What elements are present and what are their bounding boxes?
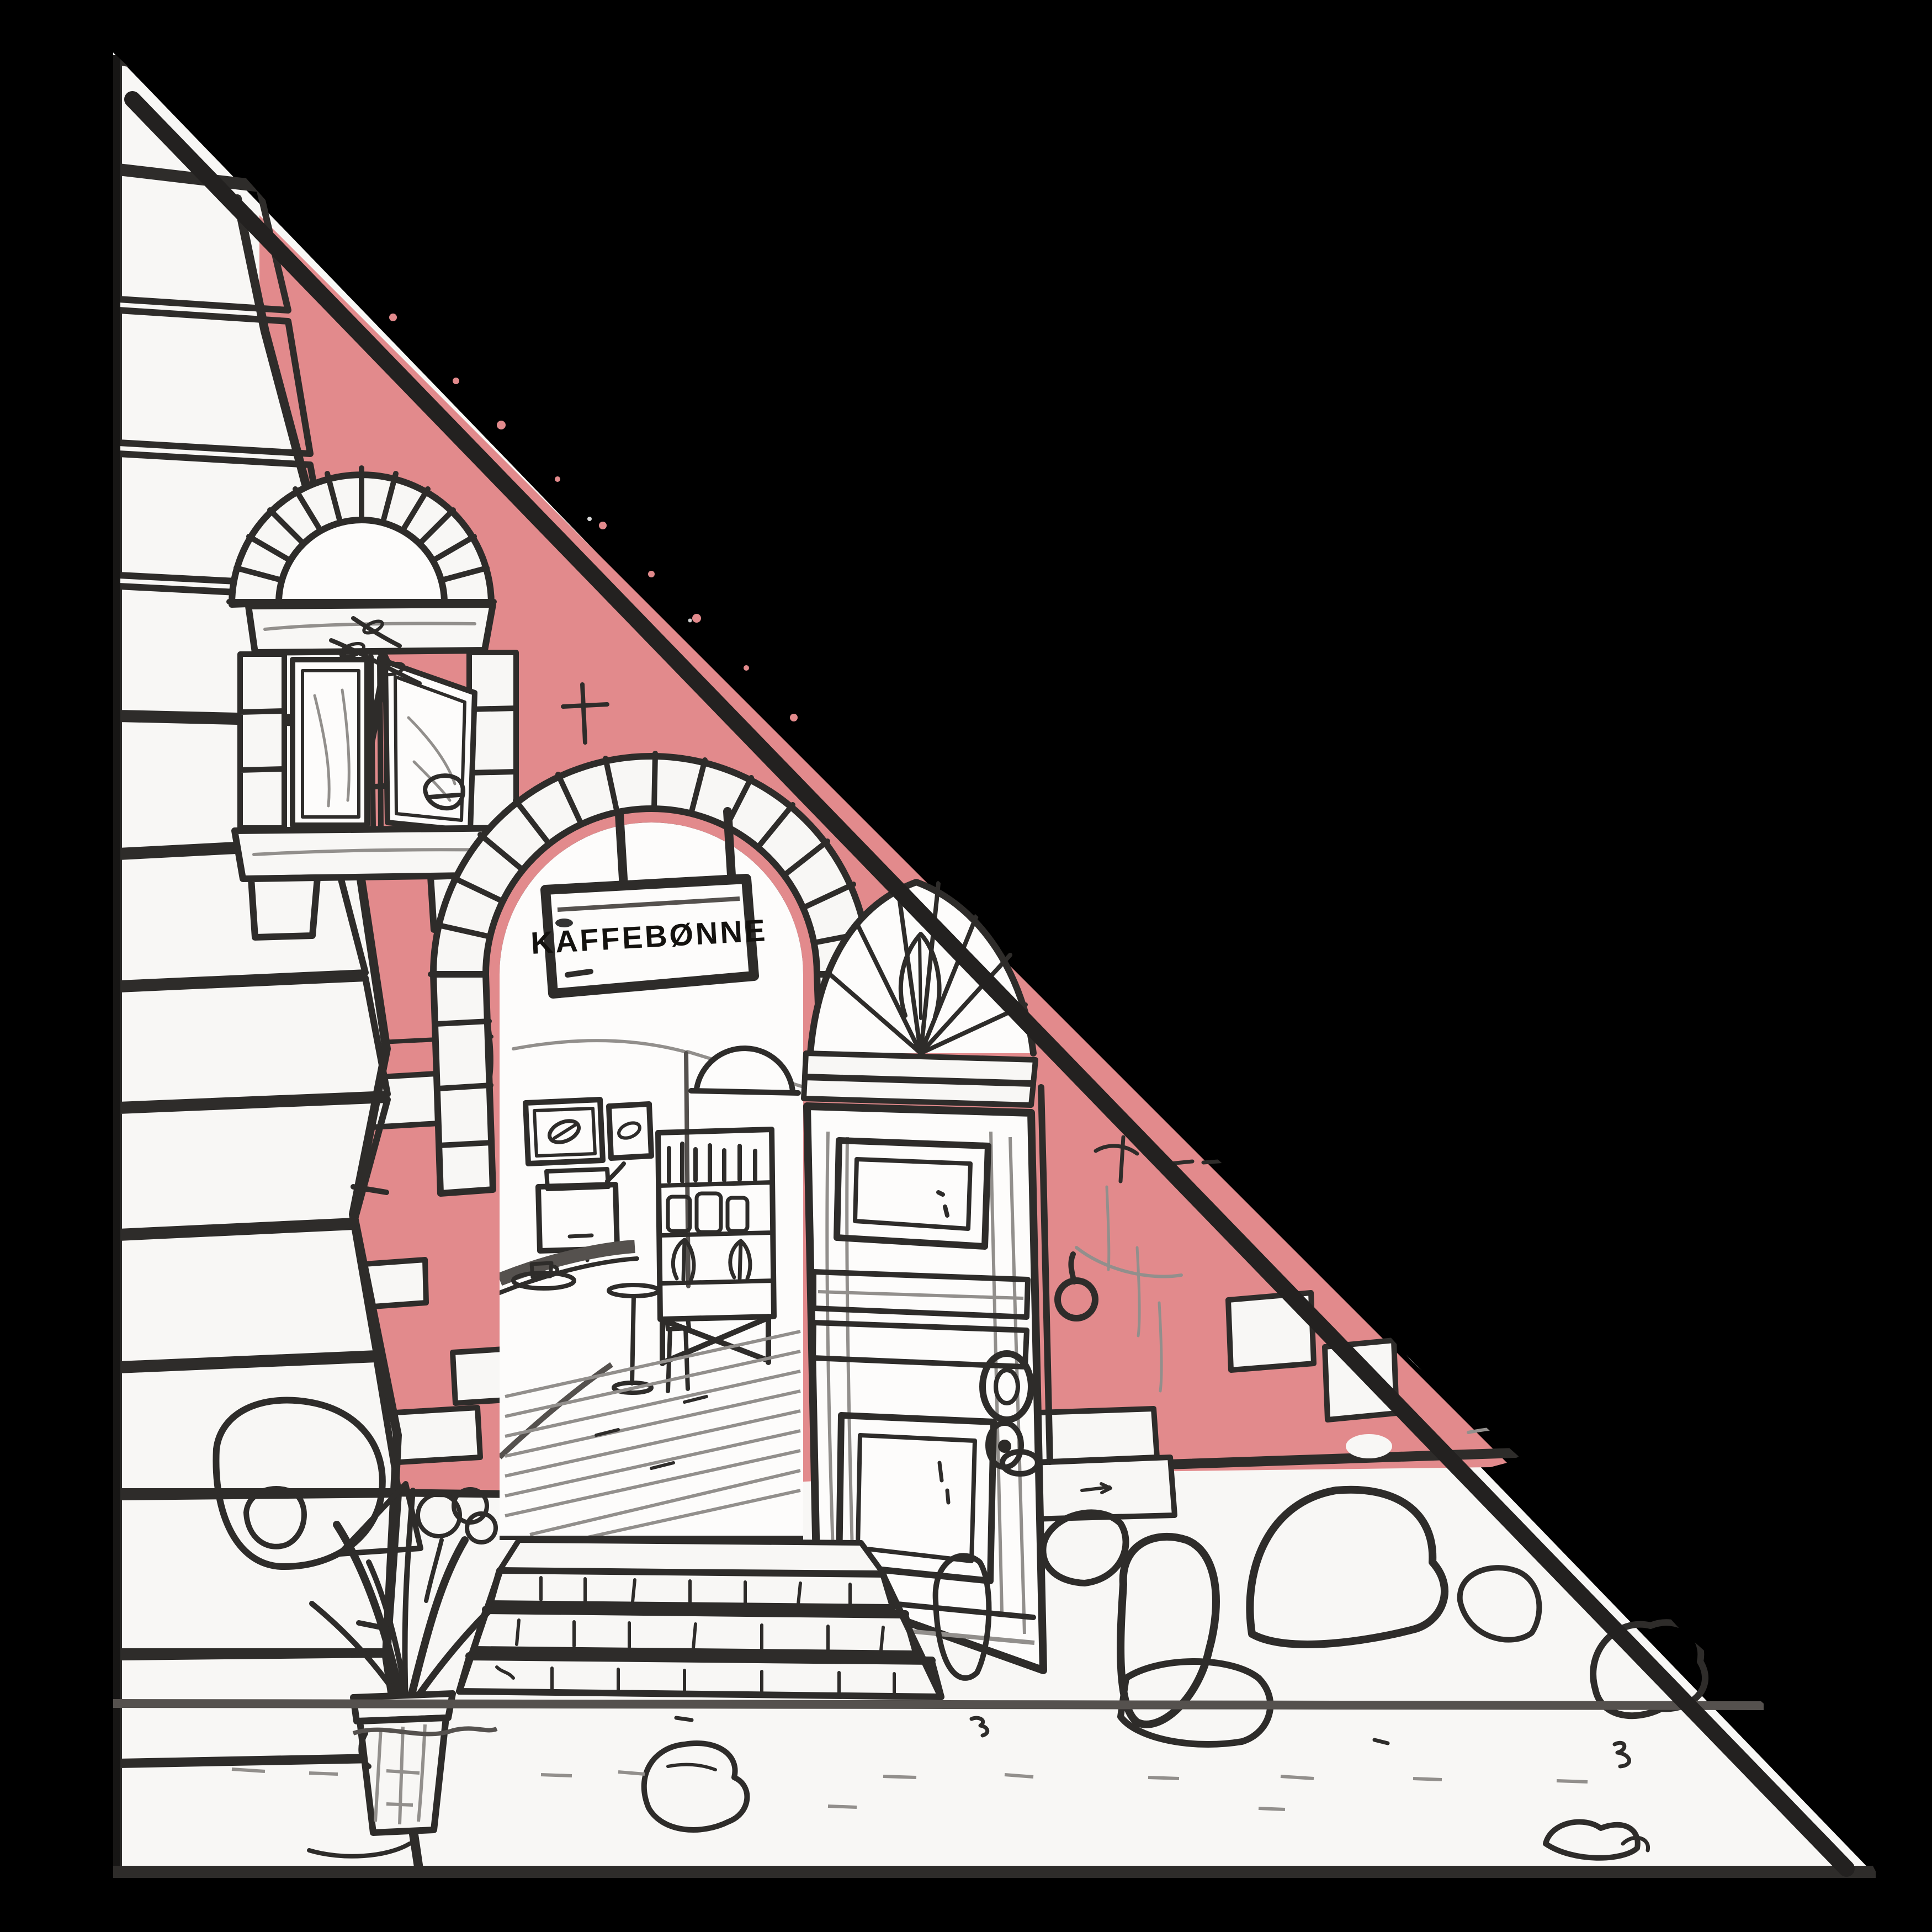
steps (459, 1540, 941, 1697)
illustration-kaffebonne-sketch: KAFFEBØNNE (0, 0, 1932, 1932)
